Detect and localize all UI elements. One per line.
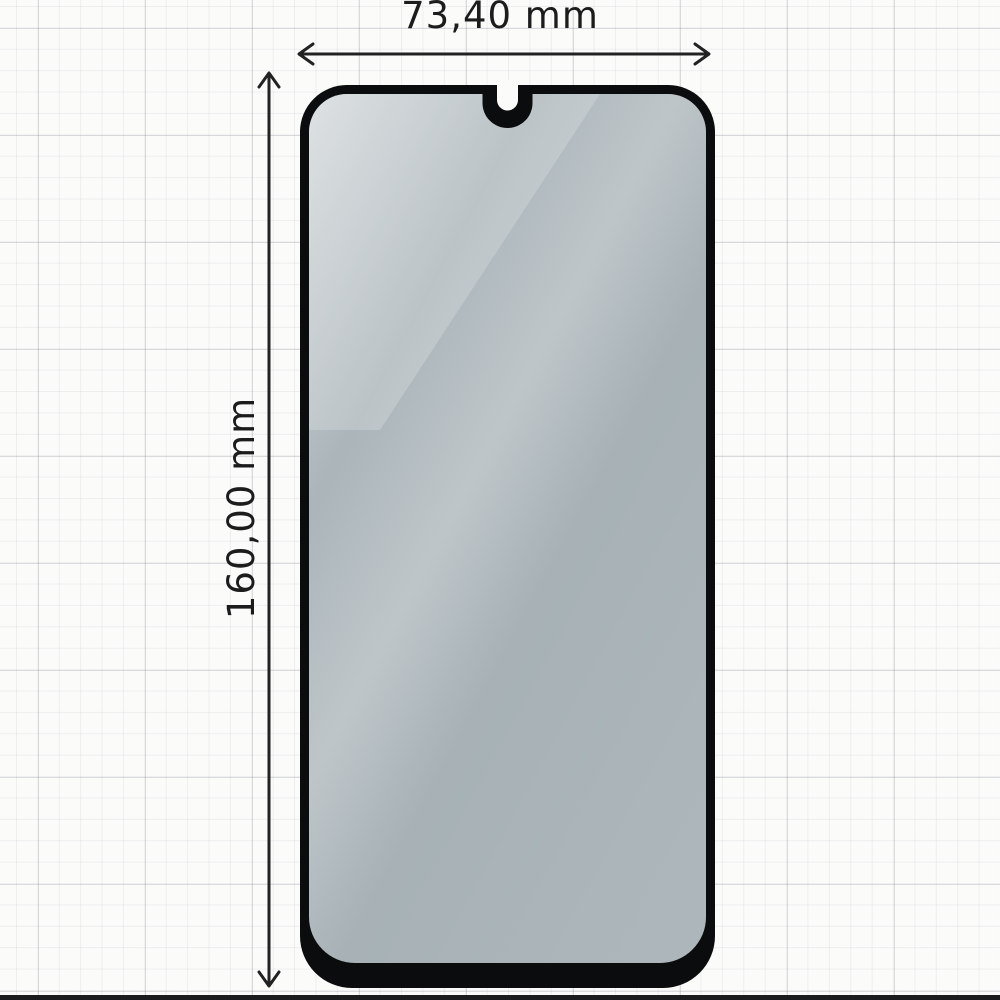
screen-protector-diagram	[0, 0, 1000, 1000]
height-dimension-label: 160,00 mm	[220, 397, 264, 619]
diagram-canvas: 73,40 mm 160,00 mm	[0, 0, 1000, 1000]
screen-protector	[300, 80, 715, 988]
width-dimension-arrow	[299, 44, 709, 64]
notch-cutout	[497, 80, 518, 111]
photo-bottom-edge	[0, 995, 1000, 1000]
width-dimension-label: 73,40 mm	[401, 0, 599, 38]
